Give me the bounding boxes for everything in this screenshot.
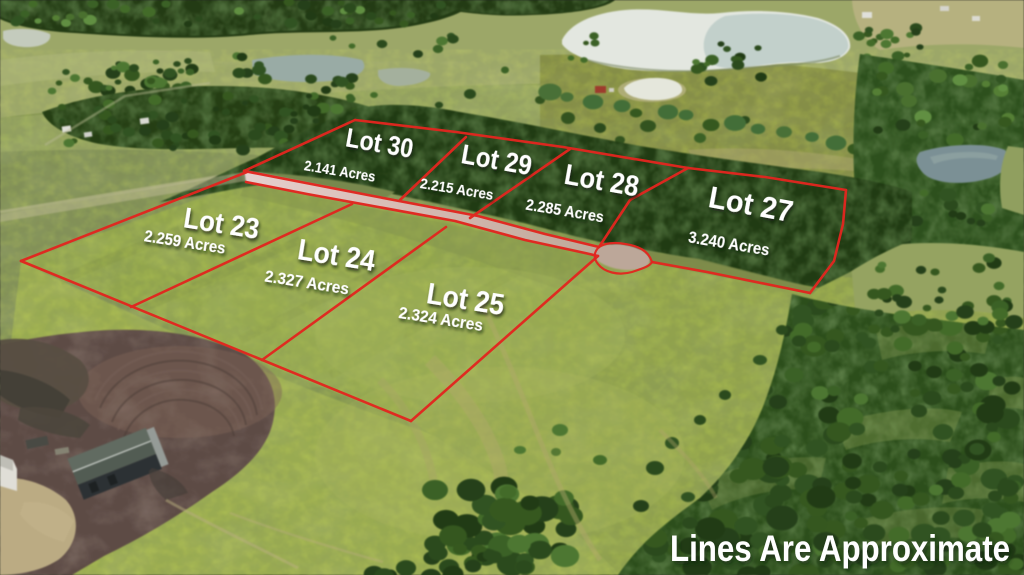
svg-text:Lines Are Approximate: Lines Are Approximate <box>670 528 1010 569</box>
